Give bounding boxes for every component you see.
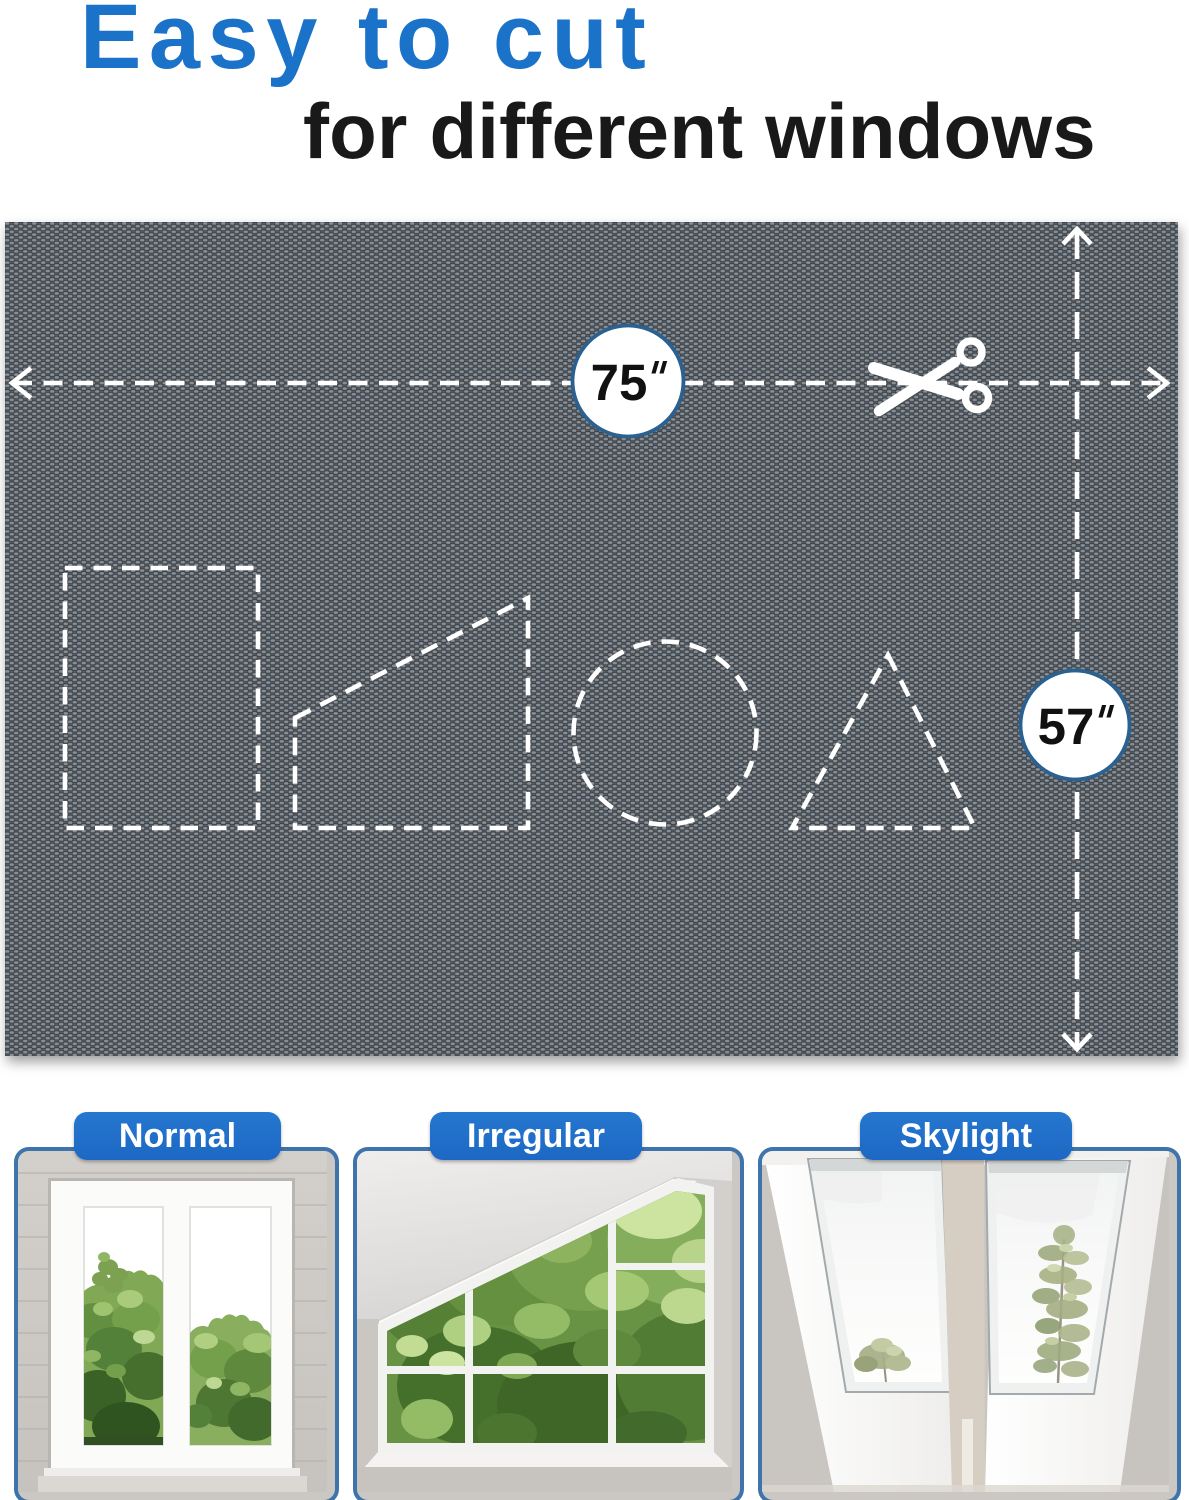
svg-text:75: 75 (591, 354, 648, 411)
svg-text:57: 57 (1038, 698, 1095, 755)
